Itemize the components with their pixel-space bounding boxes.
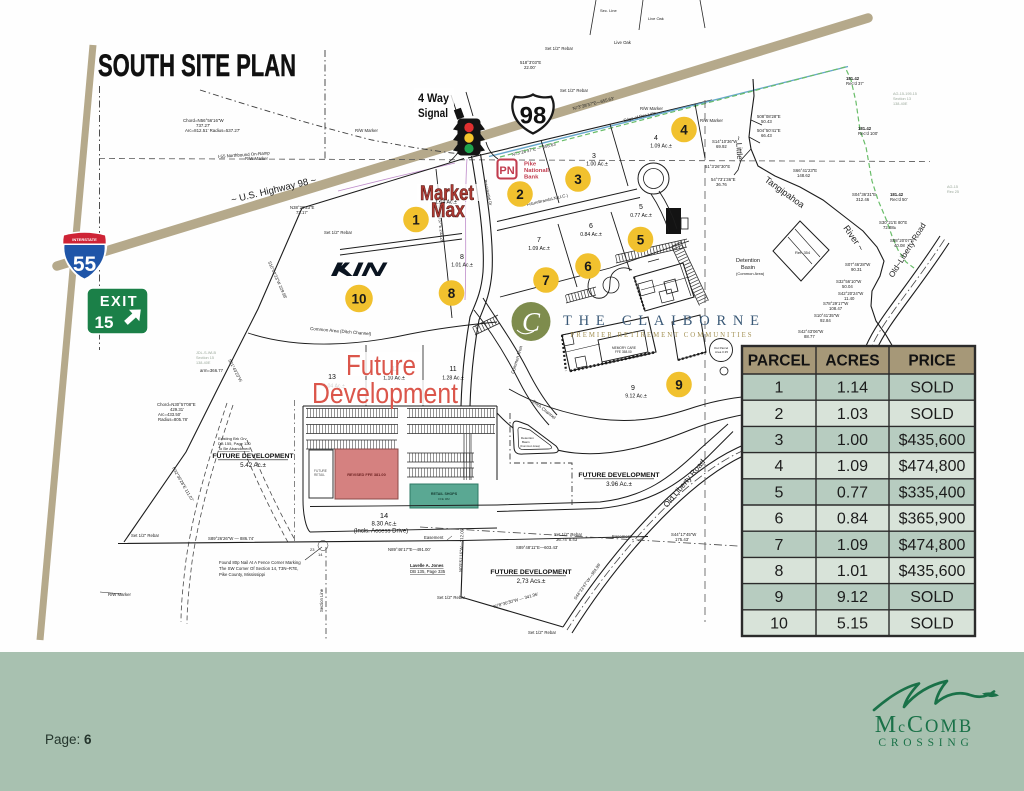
svg-text:14: 14: [318, 552, 323, 557]
svg-text:AG-15: AG-15: [947, 185, 958, 189]
svg-text:Page: 6: Page: 6: [45, 732, 92, 747]
svg-text:1.14 Ac.±: 1.14 Ac.±: [435, 200, 457, 206]
svg-text:PN: PN: [499, 165, 514, 177]
svg-text:5: 5: [639, 204, 643, 211]
svg-text:FUTURE DEVELOPMENT: FUTURE DEVELOPMENT: [578, 472, 660, 479]
svg-text:50.43: 50.43: [761, 119, 772, 124]
svg-text:1.01: 1.01: [837, 563, 868, 580]
svg-text:To Be Abandoned: To Be Abandoned: [218, 446, 250, 451]
svg-text:108.47: 108.47: [829, 306, 843, 311]
svg-text:(Common Area): (Common Area): [736, 271, 765, 276]
svg-text:14: 14: [380, 511, 388, 520]
svg-text:3: 3: [574, 172, 582, 187]
svg-text:4: 4: [775, 458, 784, 475]
svg-text:7: 7: [537, 237, 541, 244]
svg-text:6: 6: [584, 259, 592, 274]
svg-text:36.74' 8.43: 36.74' 8.43: [556, 537, 578, 542]
svg-text:R/W Marker: R/W Marker: [640, 106, 663, 111]
svg-text:23: 23: [310, 547, 315, 552]
svg-text:9: 9: [775, 589, 784, 606]
svg-text:Nationall: Nationall: [524, 168, 549, 174]
svg-text:5: 5: [637, 233, 645, 248]
svg-text:4: 4: [654, 135, 658, 142]
svg-text:arm=366.77: arm=366.77: [200, 368, 224, 373]
svg-text:PREMIER RETIREMENT COMMUNITIES: PREMIER RETIREMENT COMMUNITIES: [571, 332, 752, 339]
svg-text:Set 1/2" Rebar: Set 1/2" Rebar: [560, 88, 589, 93]
svg-text:Sec. Line: Sec. Line: [600, 8, 617, 13]
svg-text:Lavelle A. Jones: Lavelle A. Jones: [410, 563, 444, 568]
svg-text:Set 1/2" Rebar: Set 1/2" Rebar: [528, 630, 557, 635]
svg-text:R/W Marker: R/W Marker: [355, 128, 378, 133]
svg-text:Arc=812.51' Radius=537.27': Arc=812.51' Radius=537.27': [185, 128, 240, 133]
svg-text:92.84: 92.84: [820, 318, 831, 323]
svg-text:8: 8: [775, 563, 784, 580]
svg-text:1.09 Ac.±: 1.09 Ac.±: [650, 144, 672, 150]
svg-text:FFE 382: FFE 382: [438, 497, 450, 501]
svg-text:1.09: 1.09: [837, 537, 868, 554]
svg-text:Section 13: Section 13: [893, 97, 911, 101]
svg-text:$435,600: $435,600: [899, 432, 966, 449]
svg-text:8.30 Ac.±: 8.30 Ac.±: [372, 522, 398, 528]
svg-text:EXIT: EXIT: [100, 294, 138, 310]
svg-text:S89°26'26"W — 886.74': S89°26'26"W — 886.74': [208, 536, 254, 541]
svg-text:3: 3: [592, 153, 596, 160]
svg-text:1: 1: [775, 380, 784, 397]
svg-text:Live Oak: Live Oak: [648, 16, 664, 21]
svg-text:2,73 Acs.±: 2,73 Acs.±: [517, 578, 546, 585]
svg-text:138-40E: 138-40E: [893, 102, 908, 106]
svg-text:DB 135, Page 335: DB 135, Page 335: [410, 569, 446, 574]
svg-text:72.88±: 72.88±: [883, 225, 897, 230]
svg-text:7: 7: [775, 537, 784, 554]
svg-text:Found 80p Nail At A Fence Corn: Found 80p Nail At A Fence Corner Marking: [219, 560, 301, 565]
svg-text:4 Way: 4 Way: [418, 91, 449, 105]
svg-text:Radius=805.78': Radius=805.78': [158, 417, 188, 422]
svg-text:Section Line: Section Line: [319, 588, 324, 612]
svg-text:1.00: 1.00: [837, 432, 868, 449]
svg-text:(Common Area): (Common Area): [520, 444, 540, 448]
svg-text:FFE 358.00: FFE 358.00: [615, 350, 632, 354]
svg-text:22.00': 22.00': [524, 65, 536, 70]
svg-text:Ref. 354: Ref. 354: [795, 250, 811, 255]
svg-text:11: 11: [449, 366, 456, 373]
svg-text:Area 0.35: Area 0.35: [715, 350, 728, 354]
svg-text:REVISED FFE 381.00: REVISED FFE 381.00: [347, 472, 386, 477]
svg-text:0.77 Ac.±: 0.77 Ac.±: [630, 213, 652, 219]
svg-text:Rec'd 37': Rec'd 37': [846, 81, 864, 86]
svg-text:9: 9: [631, 385, 635, 392]
svg-text:1.09: 1.09: [837, 458, 868, 475]
svg-text:RETAIL: RETAIL: [314, 473, 325, 477]
svg-text:175.43': 175.43': [675, 537, 689, 542]
svg-text:6: 6: [775, 511, 784, 528]
svg-text:3: 3: [775, 432, 784, 449]
svg-text:0.84 Ac.±: 0.84 Ac.±: [580, 232, 602, 238]
svg-text:SOLD: SOLD: [910, 589, 954, 606]
svg-text:Set 1/2" Rebar: Set 1/2" Rebar: [131, 533, 160, 538]
svg-text:2: 2: [775, 406, 784, 423]
svg-text:R/W Marker: R/W Marker: [700, 118, 723, 123]
svg-text:9.12: 9.12: [837, 589, 868, 606]
svg-text:SOLD: SOLD: [910, 406, 954, 423]
svg-text:1.09 Ac.±: 1.09 Ac.±: [528, 246, 550, 252]
svg-text:10: 10: [351, 292, 366, 307]
svg-text:88.77: 88.77: [804, 334, 815, 339]
svg-text:FUTURE DEVELOPMENT: FUTURE DEVELOPMENT: [490, 569, 572, 576]
svg-text:66.43: 66.43: [761, 133, 772, 138]
svg-text:138-40E: 138-40E: [196, 361, 211, 365]
svg-text:Section 15: Section 15: [196, 356, 214, 360]
svg-text:2: 2: [516, 187, 524, 202]
svg-text:$365,900: $365,900: [899, 511, 966, 528]
svg-text:$474,800: $474,800: [899, 458, 966, 475]
svg-text:15: 15: [95, 313, 114, 332]
svg-text:Rec'd 100': Rec'd 100': [858, 131, 878, 136]
svg-text:ACRES: ACRES: [825, 353, 879, 370]
svg-text:3.96 Ac.±: 3.96 Ac.±: [606, 481, 632, 488]
svg-text:9: 9: [675, 378, 683, 393]
svg-text:JDL-S-WLB: JDL-S-WLB: [196, 351, 217, 355]
svg-text:98: 98: [520, 103, 547, 130]
svg-text:90.31: 90.31: [851, 267, 862, 272]
svg-text:R/W Marker: R/W Marker: [108, 592, 131, 597]
svg-text:Rec'd 50': Rec'd 50': [890, 197, 908, 202]
svg-text:1.01 Ac.±: 1.01 Ac.±: [451, 263, 473, 269]
svg-text:Pike: Pike: [524, 162, 537, 168]
svg-text:5: 5: [775, 484, 784, 501]
svg-text:SOUTH SITE PLAN: SOUTH SITE PLAN: [98, 47, 296, 83]
svg-text:R/W Marker: R/W Marker: [245, 156, 268, 161]
svg-text:1: 1: [412, 213, 420, 228]
svg-text:7: 7: [542, 273, 550, 288]
svg-text:69.92: 69.92: [716, 144, 727, 149]
svg-text:SOLD: SOLD: [910, 380, 954, 397]
svg-text:PARCEL: PARCEL: [748, 353, 811, 370]
svg-text:Easement: Easement: [424, 535, 444, 540]
svg-text:N89°46'17"E—491.00': N89°46'17"E—491.00': [388, 547, 431, 552]
svg-text:5.15: 5.15: [837, 615, 868, 632]
svg-text:SOLD: SOLD: [910, 615, 954, 632]
svg-text:9.12 Ac.±: 9.12 Ac.±: [625, 394, 647, 400]
svg-text:1.14: 1.14: [837, 380, 868, 397]
svg-text:0.77: 0.77: [837, 484, 868, 501]
svg-text:5.42 Ac.±: 5.42 Ac.±: [240, 462, 266, 469]
svg-text:6: 6: [589, 223, 593, 230]
svg-text:Easement: Easement: [612, 534, 632, 539]
svg-text:4: 4: [680, 123, 688, 138]
svg-text:Development: Development: [312, 378, 458, 410]
svg-text:CROSSING: CROSSING: [878, 737, 973, 749]
svg-text:10: 10: [770, 615, 788, 632]
svg-text:1.00 Ac.±: 1.00 Ac.±: [586, 162, 608, 168]
svg-text:148.62: 148.62: [797, 173, 811, 178]
svg-text:Set 1/2" Rebar: Set 1/2" Rebar: [437, 595, 466, 600]
svg-text:Set 1/2" Rebar: Set 1/2" Rebar: [545, 46, 574, 51]
svg-text:The SW Corner Of Section 14, T: The SW Corner Of Section 14, T3N–R7E,: [219, 566, 298, 571]
svg-text:51°3'26"30"E: 51°3'26"30"E: [705, 164, 730, 169]
svg-text:PRICE: PRICE: [908, 353, 955, 370]
svg-text:8: 8: [448, 286, 456, 301]
svg-text:73.17': 73.17': [296, 210, 308, 215]
svg-text:$474,800: $474,800: [899, 537, 966, 554]
svg-text:Signal: Signal: [418, 106, 448, 120]
svg-text:Bank: Bank: [524, 175, 539, 181]
svg-text:Pike County, Mississippi: Pike County, Mississippi: [219, 572, 265, 577]
svg-text:$335,400: $335,400: [899, 484, 966, 501]
svg-text:Set 1/2" Rebar: Set 1/2" Rebar: [324, 230, 353, 235]
svg-text:Detention: Detention: [736, 258, 760, 264]
svg-text:S89°48'11"E—603.43': S89°48'11"E—603.43': [516, 545, 558, 550]
svg-text:Rec 25: Rec 25: [947, 190, 959, 194]
svg-text:RETAIL SHOPS: RETAIL SHOPS: [431, 492, 458, 496]
svg-text:50.04: 50.04: [842, 284, 853, 289]
svg-text:INTERSTATE: INTERSTATE: [72, 237, 97, 242]
svg-text:1.03: 1.03: [837, 406, 868, 423]
svg-text:0.84: 0.84: [837, 511, 868, 528]
svg-text:AG-15-195.15: AG-15-195.15: [893, 92, 917, 96]
svg-text:Live Oak: Live Oak: [614, 40, 632, 45]
svg-text:8: 8: [460, 254, 464, 261]
svg-text:55: 55: [73, 253, 97, 276]
svg-text:312.46: 312.46: [856, 197, 870, 202]
svg-text:FUTURE DEVELOPMENT: FUTURE DEVELOPMENT: [212, 453, 294, 460]
svg-text:36.76: 36.76: [716, 182, 727, 187]
svg-text:(Incls. Access Drive): (Incls. Access Drive): [354, 529, 408, 535]
svg-text:$435,600: $435,600: [899, 563, 966, 580]
